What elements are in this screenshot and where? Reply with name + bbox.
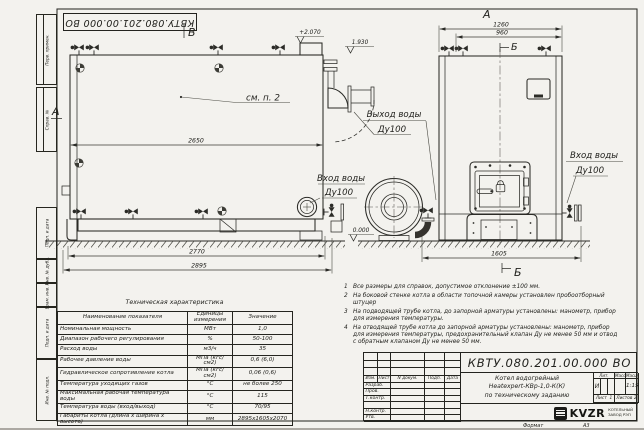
outlet-pipe-front [364, 176, 434, 241]
water-inlet-flange [297, 197, 316, 216]
tech-header-name: Наименование показателя [58, 312, 188, 325]
tech-cell: не более 250 [233, 380, 293, 390]
table-row: Номинальная мощностьМВт1,0 [58, 325, 293, 335]
table-row: Рабочее давление водыМПа (кгс/см2)0,6 (6… [58, 355, 293, 368]
margin-field-label: Инв. № подл. [45, 376, 50, 405]
rev-header-izm: Изм. [364, 376, 378, 383]
tech-cell: % [188, 335, 233, 345]
table-row: Диапазон рабочего регулирования%50-100 [58, 335, 293, 345]
margin-field-inv-podl: Инв. № подл. [36, 359, 57, 421]
grid-cell [445, 368, 461, 376]
section-mark-b-top: Б [511, 42, 518, 53]
margin-field-label: Взам. инв. № [45, 281, 50, 309]
inlet-valve-front [562, 205, 581, 221]
grid-cell [378, 353, 391, 361]
tech-cell: 115 [233, 390, 293, 403]
grid-cell [391, 353, 425, 361]
grid-cell [425, 353, 445, 361]
tech-cell: м3/ч [188, 345, 233, 355]
tech-header-value: Значение [233, 312, 293, 325]
tech-cell: Температура уходящих газов [58, 380, 188, 390]
notes-list: 1Все размеры для справок, допустимое отк… [338, 284, 630, 348]
grid-cell [445, 361, 461, 369]
tech-table-header-row: Наименование показателя Единицы измерени… [58, 312, 293, 325]
table-row: Расход водым3/ч35 [58, 345, 293, 355]
margin-field-perv-primen: Перв. примен. [36, 14, 57, 85]
grid-cell [445, 353, 461, 361]
outlet-dn: Ду100 [377, 125, 407, 135]
rev-header-list: Лист [378, 376, 391, 383]
lit-value: И [594, 379, 601, 395]
note-number: 4 [338, 325, 353, 347]
grid-cell [378, 361, 391, 369]
dim-1260: 1260 [493, 22, 509, 29]
tech-cell: Расход воды [58, 345, 188, 355]
tech-cell: Рабочее давление воды [58, 355, 188, 368]
grid-cell [425, 361, 445, 369]
margin-field-label: Справ. № [45, 109, 50, 129]
title-block-revision-grid: Изм. Лист N докум. Подп. Дата Разраб. Пр… [364, 353, 461, 422]
inlet-label-front: Вход воды [570, 151, 618, 161]
grid-cell [378, 368, 391, 376]
note-number: 1 [338, 284, 353, 291]
tech-cell: 0,06 (0,6) [233, 368, 293, 381]
table-row: Температура уходящих газов°Сне более 250 [58, 380, 293, 390]
see-note-label: см. п. 2 [246, 94, 280, 104]
tech-cell: 35 [233, 345, 293, 355]
grid-cell [391, 361, 425, 369]
tech-cell: °С [188, 390, 233, 403]
tech-cell: МВт [188, 325, 233, 335]
tech-cell: Максимальная рабочая температура воды [58, 390, 188, 403]
tech-header-units: Единицы измерения [188, 312, 233, 325]
tech-cell: Габариты котла (длина х ширина х высота) [58, 413, 188, 426]
sheet-value: 1 [609, 396, 612, 401]
tech-cell: мм [188, 413, 233, 426]
rev-header-data: Дата [445, 376, 461, 383]
elevation-top: +2.070 [299, 30, 321, 36]
tech-cell: °С [188, 403, 233, 413]
tech-table-title: Техническая характеристика [57, 299, 292, 306]
table-row: Максимальная рабочая температура воды°С1… [58, 390, 293, 403]
note-number: 2 [338, 293, 353, 307]
section-mark-b-bottom: Б [514, 266, 522, 279]
tech-cell: Температура воды (вход/выход) [58, 403, 188, 413]
margin-field-inv-dubl: Инв. № дубл. [36, 259, 57, 283]
grid-cell [445, 415, 461, 422]
sheets-value: 2 [634, 396, 637, 401]
dim-1605: 1605 [491, 251, 507, 258]
tech-cell: °С [188, 380, 233, 390]
outlet-label: Выход воды [367, 110, 422, 120]
tech-cell: 70/95 [233, 403, 293, 413]
drawing-sheet: 2650 2770 2895 1260 960 1605 В А А Б Б [0, 0, 644, 430]
tech-table: Наименование показателя Единицы измерени… [57, 311, 293, 426]
inlet-label-side: Вход воды [317, 174, 365, 184]
side-view [62, 43, 374, 240]
note-text: На подводящей трубе котла, до запорной а… [353, 309, 618, 323]
tech-cell: 1,0 [233, 325, 293, 335]
tech-cell: 50-100 [233, 335, 293, 345]
kvzr-logo-text: KVZR [570, 407, 605, 420]
note-4: 4На отводящей трубе котла до запорной ар… [338, 325, 630, 347]
dim-960: 960 [496, 30, 508, 37]
ground-line [45, 241, 590, 249]
sheet-number: Лист 1 [594, 395, 615, 403]
tech-cell: МПа (кгс/см2) [188, 368, 233, 381]
dim-2770: 2770 [189, 249, 205, 256]
tech-cell: Гидравлическое сопротивление котла [58, 368, 188, 381]
sign-utv: Утв. [364, 415, 391, 422]
tech-cell: Номинальная мощность [58, 325, 188, 335]
product-name-line3: по техническому заданию [461, 392, 593, 400]
note-2: 2На боковой стенке котла в области топоч… [338, 293, 630, 307]
grid-cell [391, 368, 425, 376]
rev-header-dokum: N докум. [391, 376, 425, 383]
table-row: Температура воды (вход/выход)°С70/95 [58, 403, 293, 413]
doc-number: КВТУ.080.201.00.000 ВО [460, 353, 638, 373]
front-view [364, 45, 581, 247]
grid-cell [425, 368, 445, 376]
grid-cell [391, 415, 425, 422]
product-name-line2: Heatexpert-КВр-1,0-К(К) [461, 383, 593, 391]
note-text: На отводящей трубе котла до запорной арм… [353, 325, 618, 347]
elevation-zero: 0.000 [353, 228, 370, 234]
scale-value: 1:15 [626, 379, 639, 395]
margin-field-podp-data-1: Подп. и дата [36, 207, 57, 259]
grid-cell [608, 379, 615, 395]
stamp-doc-number: КВТУ.080.201.00.000 ВО [63, 13, 197, 31]
kvzr-logo-icon [554, 407, 567, 420]
note-text: На боковой стенке котла в области топочн… [353, 293, 618, 307]
inlet-dn-side: Ду100 [324, 188, 354, 198]
grid-cell [364, 368, 378, 376]
note-1: 1Все размеры для справок, допустимое отк… [338, 284, 630, 291]
grid-cell [425, 415, 445, 422]
elevation-mid: 1.930 [352, 40, 369, 46]
margin-field-label: Подп. и дата [45, 319, 50, 348]
sheet-label: Лист [596, 396, 607, 401]
title-block: Изм. Лист N докум. Подп. Дата Разраб. Пр… [363, 352, 637, 421]
company-cell: KVZR КОТЕЛЬНЫЙ ЗАВОД РЭП [460, 403, 638, 422]
company-name: КОТЕЛЬНЫЙ ЗАВОД РЭП [608, 408, 633, 417]
door-latch-icon [498, 181, 504, 185]
tech-cell: 2895х1605х2070 [233, 413, 293, 426]
margin-field-label: Подп. и дата [45, 219, 50, 248]
margin-field-podp-data-2: Подп. и дата [36, 307, 57, 359]
product-name: Котел водогрейный Heatexpert-КВр-1,0-К(К… [460, 373, 593, 403]
note-number: 3 [338, 309, 353, 323]
grid-cell [601, 379, 608, 395]
stamp-text: КВТУ.080.201.00.000 ВО [65, 17, 194, 28]
sheets-total: Листов 2 [615, 395, 639, 403]
dim-2895: 2895 [191, 263, 207, 270]
water-outlet-elbow [324, 60, 374, 142]
control-box [527, 79, 550, 99]
tech-cell: Диапазон рабочего регулирования [58, 335, 188, 345]
sheets-label: Листов [616, 396, 632, 401]
ash-box [467, 215, 537, 241]
tech-cell: 0,6 (6,0) [233, 355, 293, 368]
margin-field-sprav: Справ. № [36, 87, 57, 152]
grid-cell [364, 361, 378, 369]
table-row: Габариты котла (длина х ширина х высота)… [58, 413, 293, 426]
mass-value [615, 379, 626, 395]
rev-header-podp: Подп. [425, 376, 445, 383]
note-3: 3На подводящей трубе котла, до запорной … [338, 309, 630, 323]
margin-field-vzam-inv: Взам. инв. № [36, 283, 57, 307]
grid-cell [364, 353, 378, 361]
note-text: Все размеры для справок, допустимое откл… [353, 284, 540, 291]
company-name-line2: ЗАВОД РЭП [608, 413, 633, 418]
margin-field-label: Перв. примен. [45, 34, 50, 65]
inlet-dn-front: Ду100 [575, 166, 605, 176]
dim-2650: 2650 [188, 138, 204, 145]
table-row: Гидравлическое сопротивление котлаМПа (к… [58, 368, 293, 381]
lit-mass-scale-block: Лит. Масса Масштаб И 1:15 Лист 1 Листов … [593, 373, 638, 403]
tech-cell: МПа (кгс/см2) [188, 355, 233, 368]
view-title-a: А [482, 8, 491, 21]
